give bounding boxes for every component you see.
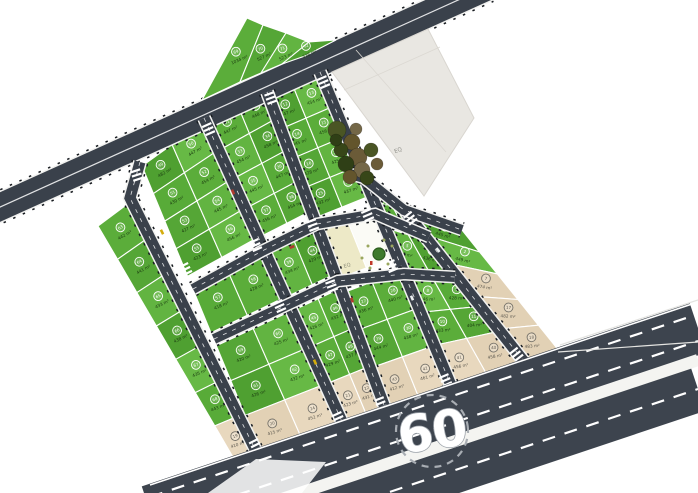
vehicle-dot <box>160 229 165 235</box>
site-plan-canvas: 63442 m²64441 m²65433 m²66438 m²67435 m²… <box>0 0 698 493</box>
site-plan-svg: 63442 m²64441 m²65433 m²66438 m²67435 m²… <box>0 0 698 493</box>
park-shrub-icon <box>361 257 364 260</box>
speed-limit-text: 60 <box>394 398 471 466</box>
tree-icon <box>343 170 357 184</box>
lot-number: 10 <box>440 319 446 324</box>
park-shrub-icon <box>367 245 370 248</box>
lot-area: 428 m² <box>449 295 465 300</box>
lot-number: 17 <box>506 305 512 310</box>
tree-icon <box>364 143 378 157</box>
park-shrub-icon <box>391 245 394 248</box>
tree-icon <box>371 158 383 170</box>
park-shrub-icon <box>369 267 372 270</box>
tree-icon <box>330 134 342 146</box>
park-marker-icon <box>370 261 373 265</box>
park-shrub-icon <box>387 263 390 266</box>
tree-icon <box>360 171 374 185</box>
park-tree-icon <box>373 248 385 260</box>
lot-number: 18 <box>529 334 535 339</box>
tree-icon <box>338 156 354 172</box>
lot-area: 482 m² <box>500 313 516 319</box>
park-shrub-icon <box>383 239 386 242</box>
tree-icon <box>350 123 362 135</box>
